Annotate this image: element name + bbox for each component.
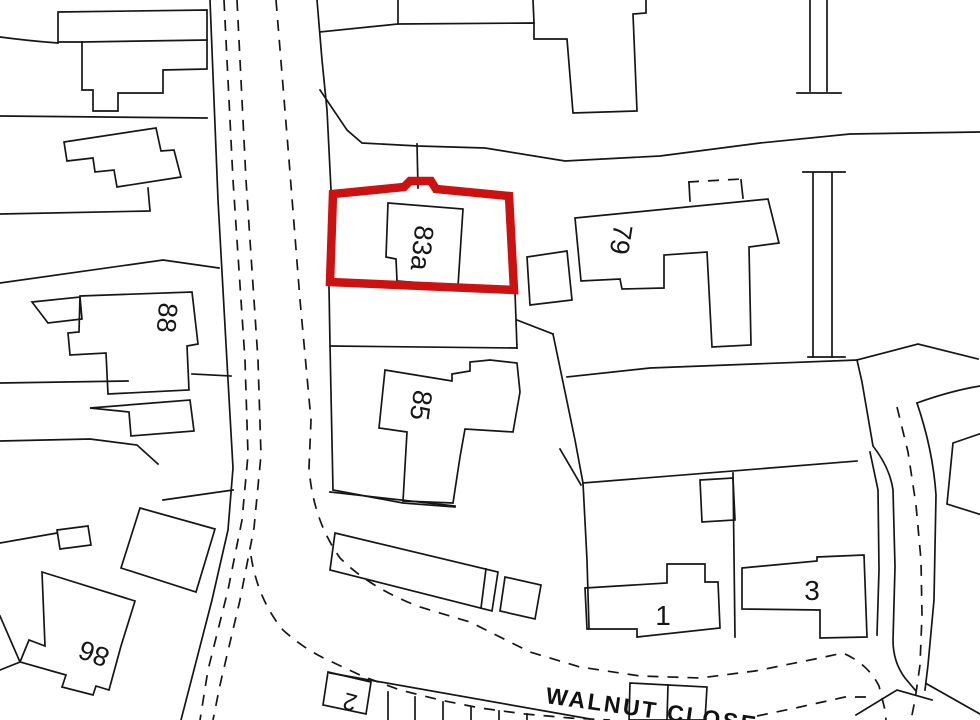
map-solid-line-22	[320, 90, 980, 161]
map-solid-line-18	[0, 616, 20, 670]
street-label-walnut-close: WALNUT CLOSE	[544, 682, 760, 720]
site-plan-map: 83a79888586132WALNUT CLOSE	[0, 0, 980, 720]
map-solid-line-51	[917, 386, 980, 403]
map-solid-line-46	[585, 564, 720, 637]
building-label-79: 79	[604, 222, 638, 256]
map-solid-line-37	[583, 461, 857, 483]
map-solid-line-40	[330, 492, 455, 506]
building-label-88: 88	[151, 302, 184, 335]
map-solid-line-31	[527, 251, 572, 305]
map-solid-line-1	[58, 10, 207, 111]
building-label-86: 86	[75, 634, 113, 672]
map-solid-line-42	[481, 569, 486, 608]
map-solid-line-35	[553, 334, 589, 628]
map-solid-line-16	[0, 533, 57, 543]
map-solid-line-26	[533, 0, 534, 23]
map-solid-line-5	[0, 188, 150, 214]
map-dashed-line-0	[200, 0, 248, 720]
map-solid-line-45	[700, 478, 735, 522]
map-solid-line-71	[856, 690, 932, 715]
map-solid-line-52	[857, 344, 978, 360]
map-dashed-line-6	[688, 179, 742, 182]
building-label-1: 1	[655, 600, 671, 631]
map-solid-line-25	[398, 0, 646, 113]
map-solid-line-3	[0, 116, 207, 118]
map-dashed-line-1	[213, 0, 261, 720]
map-solid-line-6	[0, 260, 219, 283]
map-solid-line-49	[870, 452, 879, 635]
site-plan-canvas: 83a79888586132WALNUT CLOSE	[0, 0, 980, 720]
map-solid-line-43	[500, 577, 541, 619]
map-dashed-line-2	[276, 0, 886, 720]
map-solid-line-28	[689, 183, 690, 201]
map-dashed-line-5	[757, 697, 872, 716]
map-solid-line-48	[857, 360, 916, 691]
map-solid-line-19	[181, 0, 233, 720]
map-solid-line-4	[64, 128, 181, 187]
map-solid-line-0	[0, 37, 58, 43]
map-solid-line-13	[121, 508, 215, 592]
map-solid-line-2	[82, 40, 207, 42]
map-solid-line-29	[741, 180, 743, 198]
map-solid-line-14	[163, 490, 233, 500]
map-solid-line-39	[379, 360, 520, 503]
map-solid-line-34	[517, 320, 553, 334]
building-label-85: 85	[404, 388, 438, 422]
building-label-3: 3	[804, 575, 820, 606]
map-solid-line-36	[567, 360, 857, 377]
map-solid-line-24	[320, 0, 398, 32]
parcel-and-building-lines	[0, 0, 980, 720]
map-solid-line-72	[927, 684, 980, 714]
map-solid-line-32	[330, 346, 517, 348]
map-solid-line-7	[32, 297, 82, 323]
road-dashed-lines	[200, 0, 922, 720]
map-solid-line-10	[192, 374, 231, 376]
map-solid-line-11	[90, 400, 194, 436]
map-solid-line-17	[20, 572, 135, 695]
map-solid-line-15	[57, 526, 91, 549]
map-solid-line-9	[0, 381, 128, 383]
map-solid-line-53	[947, 432, 980, 516]
map-solid-line-30	[575, 199, 779, 347]
map-labels-layer: 83a79888586132WALNUT CLOSE	[75, 222, 820, 720]
map-solid-line-12	[0, 439, 158, 464]
building-label-83a: 83a	[405, 224, 440, 273]
